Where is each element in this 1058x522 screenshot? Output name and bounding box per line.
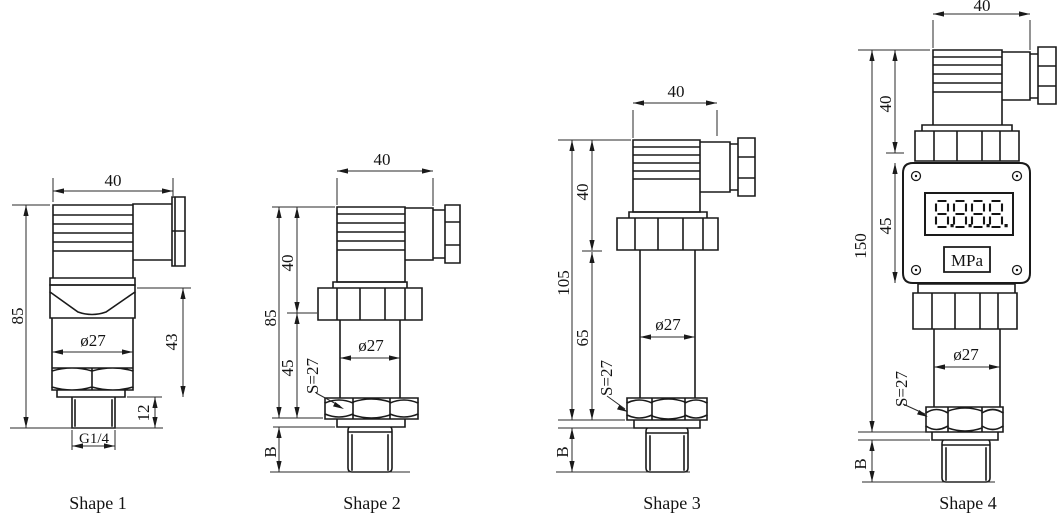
- shape3-dim-top-width: 40: [668, 82, 685, 101]
- shape3-dim-thread-length: B: [553, 446, 572, 457]
- shape3-label: Shape 3: [643, 493, 701, 513]
- shape2-label: Shape 2: [343, 493, 401, 513]
- shape3-dimension-lines: [556, 103, 717, 472]
- shape4-label: Shape 4: [939, 493, 997, 513]
- shape3-dim-overall-height: 105: [554, 270, 573, 296]
- shape4-dim-connector-height: 40: [876, 96, 895, 113]
- shape4-dim-overall-height: 150: [851, 233, 870, 259]
- shape4-dim-thread-length: B: [851, 458, 870, 469]
- shape1-label: Shape 1: [69, 493, 127, 513]
- shape-1: 40 85 43 ø27 12 G1/4 Shape 1: [8, 171, 191, 513]
- shape4-connector-outline: [915, 47, 1056, 161]
- shape3-dim-diameter: ø27: [655, 315, 681, 334]
- shape2-dim-connector-height: 40: [278, 255, 297, 272]
- shape2-dim-top-width: 40: [374, 150, 391, 169]
- shape2-dim-thread-length: B: [261, 446, 280, 457]
- shape1-dim-body-height: 43: [162, 334, 181, 351]
- shape1-body-outline: [50, 285, 135, 428]
- pressure-transmitter-dimension-drawing: 40 85 43 ø27 12 G1/4 Shape 1 40 85 40 45…: [0, 0, 1058, 522]
- shape2-body-outline: [318, 282, 422, 472]
- shape3-connector-outline: [633, 138, 755, 212]
- display-digits: [936, 201, 1002, 227]
- shape4-dim-display-height: 45: [876, 218, 895, 235]
- shape2-dim-overall-height: 85: [261, 310, 280, 327]
- shape3-dim-hex-size: S=27: [597, 359, 616, 396]
- technical-drawing-page: 40 85 43 ø27 12 G1/4 Shape 1 40 85 40 45…: [0, 0, 1058, 522]
- shape1-dim-thread-spec: G1/4: [79, 431, 110, 447]
- shape2-connector-outline: [337, 205, 460, 282]
- shape1-dim-overall-height: 85: [8, 308, 27, 325]
- shape2-dim-hex-size: S=27: [303, 357, 322, 394]
- shape2-dim-body-height: 45: [278, 360, 297, 377]
- shape2-dim-diameter: ø27: [358, 336, 384, 355]
- shape-2: 40 85 40 45 ø27 S=27 B Shape 2: [261, 150, 460, 513]
- shape4-dim-diameter: ø27: [953, 345, 979, 364]
- shape-3: 40 105 40 65 ø27 S=27 B Shape 3: [553, 82, 755, 513]
- shape4-display-module: 8.8.8.8. MPa: [903, 163, 1030, 283]
- shape3-dim-body-height: 65: [573, 330, 592, 347]
- shape4-body-outline: [913, 284, 1017, 482]
- shape1-dim-top-width: 40: [105, 171, 122, 190]
- shape3-body-outline: [617, 212, 718, 472]
- shape4-dim-hex-size: S=27: [892, 370, 911, 407]
- shape4-dim-top-width: 40: [974, 0, 991, 15]
- display-units-label: MPa: [951, 251, 984, 270]
- shape-4: 8.8.8.8. MPa 40 150 40 45 ø27 S=27 B Sha…: [851, 0, 1056, 513]
- shape3-dim-connector-height: 40: [573, 184, 592, 201]
- shape1-dim-thread-length: 12: [134, 405, 153, 422]
- shape1-connector-outline: [50, 197, 185, 285]
- shape1-dim-diameter: ø27: [80, 331, 106, 350]
- seven-segment-display: 8.8.8.8.: [925, 193, 1013, 235]
